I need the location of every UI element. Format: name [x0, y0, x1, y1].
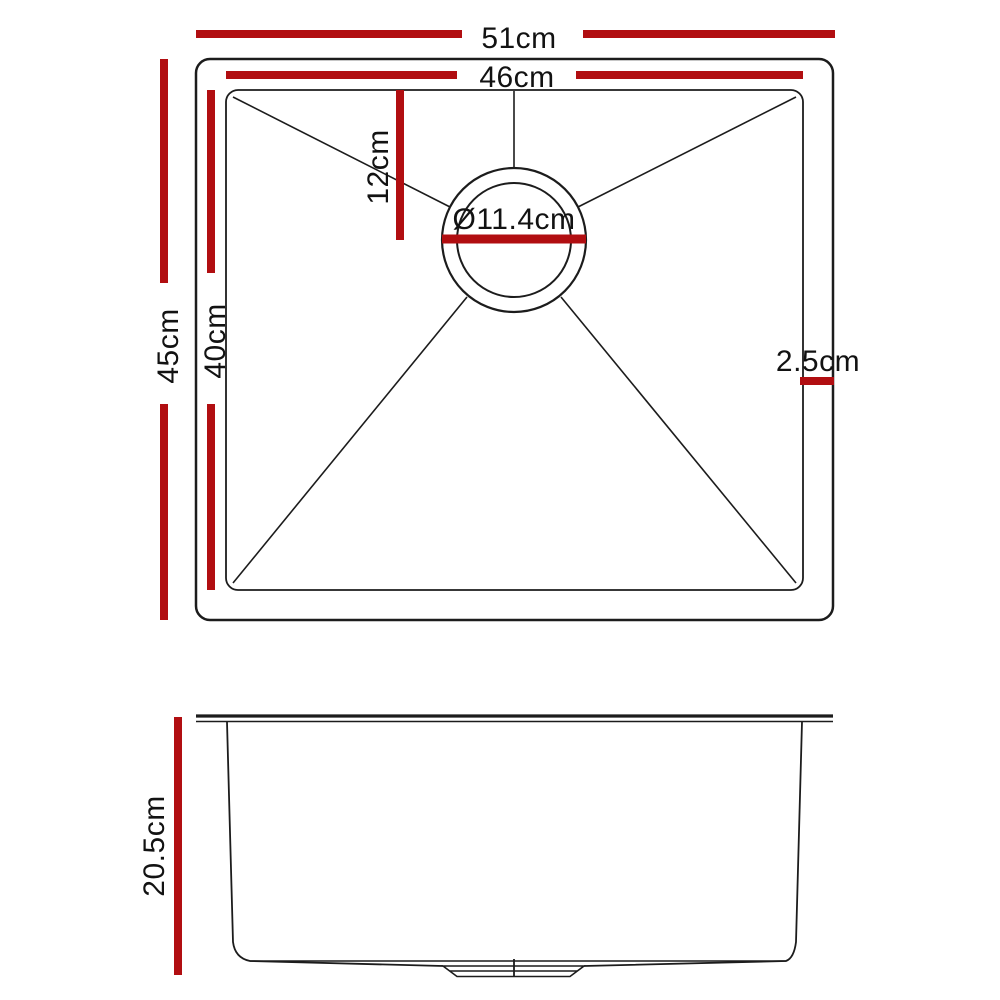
- crease-top-left: [233, 97, 450, 207]
- dim-drain-offset: 12cm: [362, 90, 400, 240]
- dim-drain-offset-label: 12cm: [362, 129, 395, 204]
- dim-inner-depth: 40cm: [199, 90, 232, 590]
- diagram-svg: 51cm 46cm 45cm 40cm 12cm Ø11.4cm: [0, 0, 1000, 1000]
- dim-outer-depth: 45cm: [152, 59, 185, 620]
- crease-bottom-right: [561, 297, 796, 583]
- sink-side-view: 20.5cm: [138, 716, 833, 977]
- sink-dimension-diagram: 51cm 46cm 45cm 40cm 12cm Ø11.4cm: [0, 0, 1000, 1000]
- dim-rim-width-label: 2.5cm: [776, 345, 860, 378]
- dim-inner-depth-label: 40cm: [199, 303, 232, 378]
- dim-rim-width: 2.5cm: [776, 345, 860, 381]
- dim-inner-width: 46cm: [226, 61, 803, 94]
- dim-drain-diameter: Ø11.4cm: [442, 203, 586, 239]
- dim-inner-width-label: 46cm: [479, 61, 554, 94]
- dim-outer-depth-label: 45cm: [152, 308, 185, 383]
- dim-drain-diameter-label: Ø11.4cm: [453, 203, 576, 236]
- dim-outer-width: 51cm: [196, 22, 835, 55]
- dim-bowl-height-label: 20.5cm: [138, 795, 171, 896]
- sink-top-view: 51cm 46cm 45cm 40cm 12cm Ø11.4cm: [152, 22, 860, 620]
- crease-top-right: [578, 97, 796, 207]
- bowl-crease-lines: [233, 91, 796, 583]
- side-bowl-profile: [227, 722, 802, 966]
- dim-bowl-height: 20.5cm: [138, 717, 178, 975]
- dim-outer-width-label: 51cm: [481, 22, 556, 55]
- crease-bottom-left: [233, 297, 467, 583]
